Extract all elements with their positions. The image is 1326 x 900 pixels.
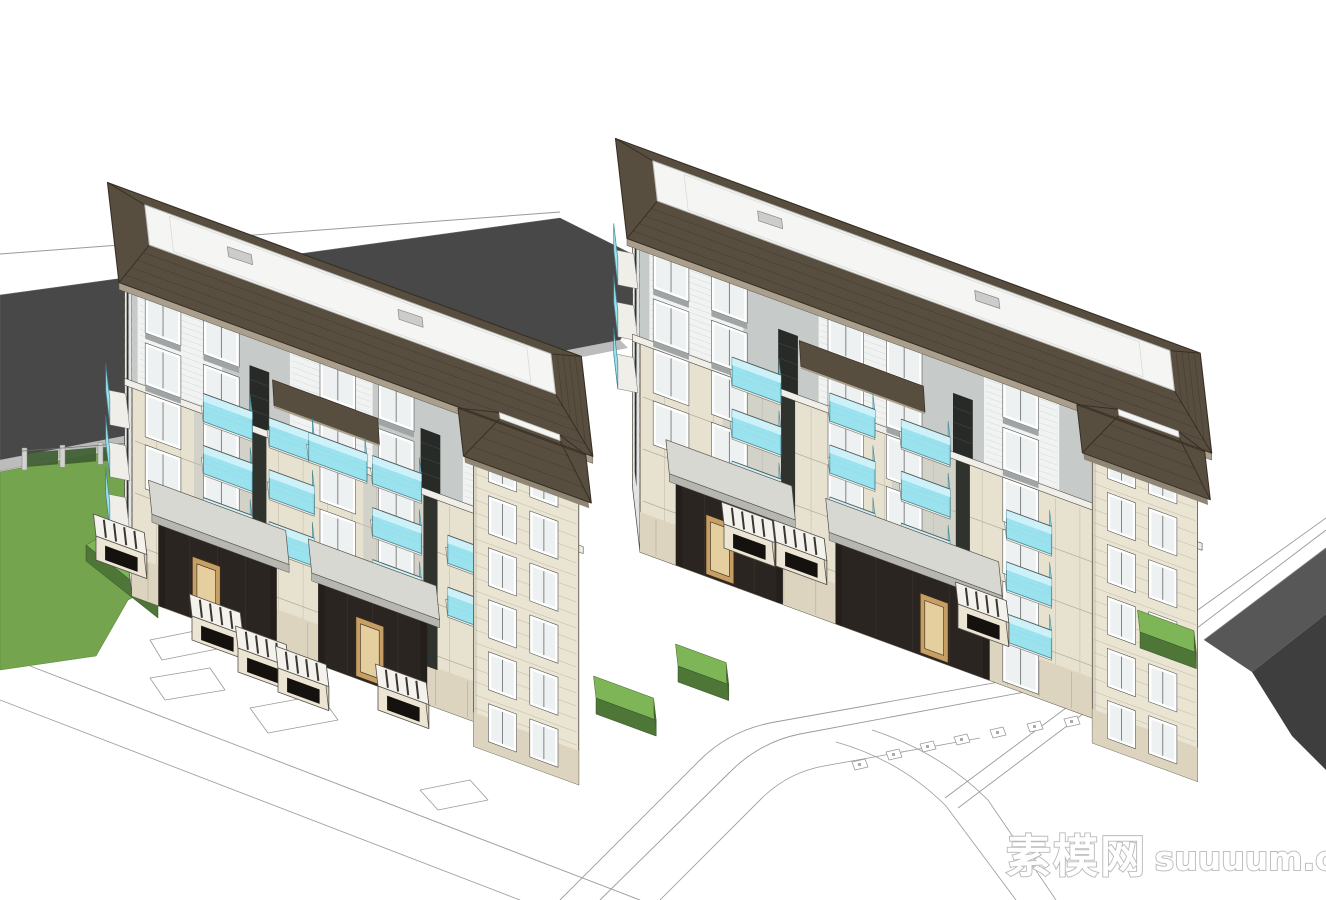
architectural-render: 素模网 suuuum.com xyxy=(0,0,1326,900)
render-canvas: 素模网 suuuum.com xyxy=(0,0,1326,900)
fence-post xyxy=(22,448,27,470)
end-dark-strip xyxy=(127,264,129,531)
corner-tower xyxy=(458,408,591,785)
lattice-panel xyxy=(421,428,441,494)
watermark-latin: suuuum.com xyxy=(1155,839,1326,878)
 xyxy=(925,601,944,656)
fence-panel xyxy=(64,447,96,464)
lattice-panel xyxy=(953,393,973,459)
fence-post xyxy=(60,445,65,467)
fence-panel xyxy=(26,450,58,467)
 xyxy=(473,456,477,747)
 xyxy=(1092,453,1096,744)
fence-post xyxy=(98,442,103,464)
end-dark-strip xyxy=(635,220,637,487)
watermark-cn: 素模网 xyxy=(1006,830,1147,883)
corner-tower xyxy=(1077,405,1210,782)
